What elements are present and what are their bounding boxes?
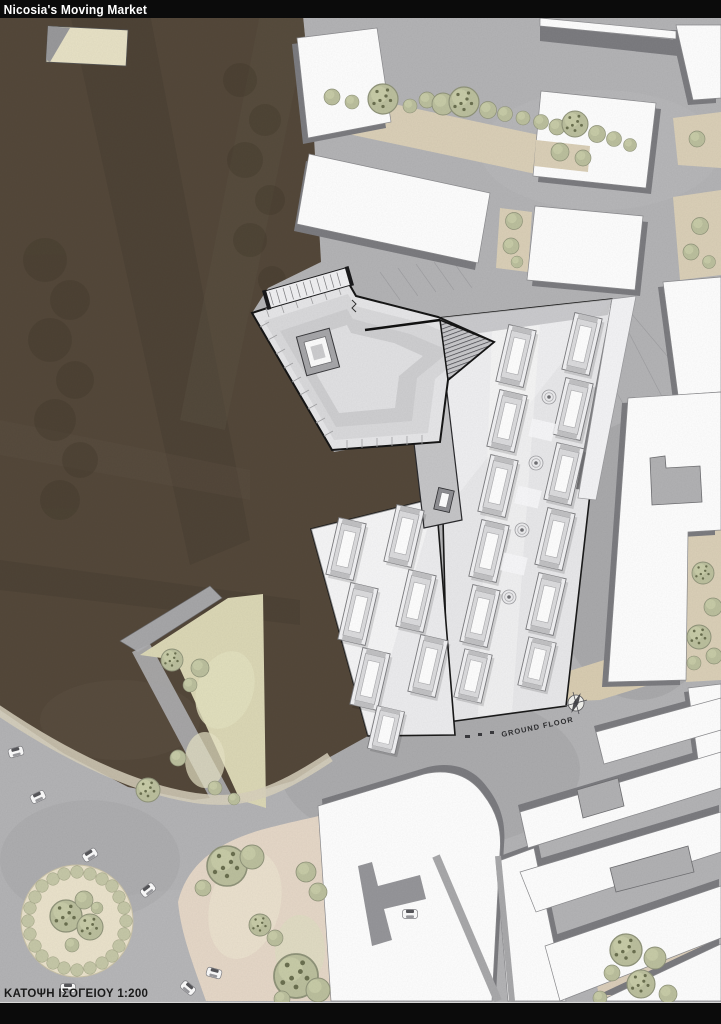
page-title: Nicosia's Moving Market: [0, 2, 147, 17]
drawing-board: Nicosia's Moving Market: [0, 0, 721, 1024]
site-plan: GROUND FLOOR: [0, 0, 721, 1024]
bottom-bar: [0, 1002, 721, 1024]
paper-grain: [0, 0, 721, 1024]
scale-label: ΚΑΤΟΨΗ ΙΣΟΓΕΙΟΥ 1:200: [4, 988, 148, 1000]
title-bar: Nicosia's Moving Market: [0, 0, 721, 18]
